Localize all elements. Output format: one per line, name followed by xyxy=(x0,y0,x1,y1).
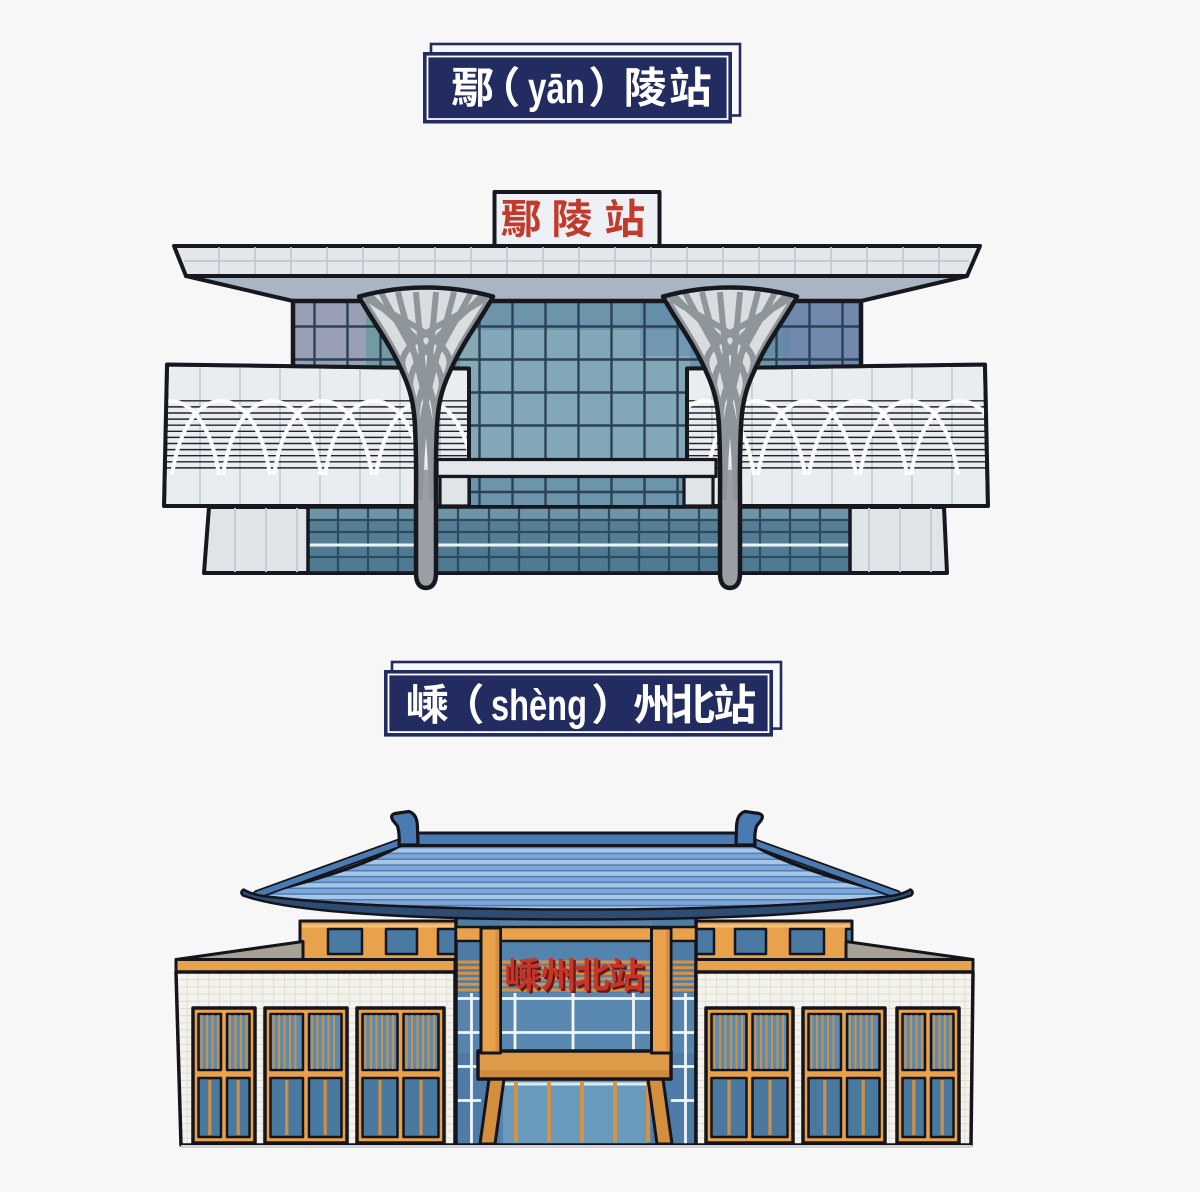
svg-text:shèng: shèng xyxy=(491,681,587,730)
svg-text:yān: yān xyxy=(528,64,585,113)
